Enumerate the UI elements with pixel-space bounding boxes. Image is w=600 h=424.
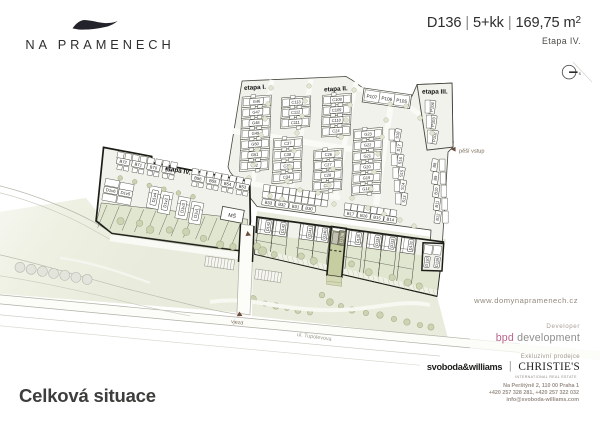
svg-text:G46: G46 — [253, 98, 261, 104]
svg-text:C111: C111 — [291, 120, 301, 126]
svg-text:G23: G23 — [364, 131, 372, 137]
svg-text:G20: G20 — [363, 164, 371, 170]
svg-text:C113: C113 — [291, 99, 301, 105]
svg-text:G50: G50 — [251, 141, 259, 147]
svg-text:C38: C38 — [284, 152, 292, 158]
svg-text:s: s — [579, 71, 582, 76]
svg-text:C37: C37 — [284, 140, 292, 146]
svg-text:etapa I.: etapa I. — [244, 84, 267, 92]
svg-text:C28: C28 — [324, 172, 332, 178]
svg-text:C24: C24 — [332, 128, 340, 134]
svg-text:G19: G19 — [363, 175, 371, 181]
svg-text:C109: C109 — [332, 107, 342, 113]
svg-text:G21: G21 — [363, 153, 371, 159]
svg-text:G47: G47 — [252, 109, 260, 115]
svg-text:G51: G51 — [251, 152, 259, 158]
svg-text:etapa III.: etapa III. — [422, 89, 448, 96]
svg-text:etapa II.: etapa II. — [324, 85, 348, 93]
svg-text:G48: G48 — [252, 120, 260, 126]
svg-text:C27: C27 — [324, 162, 332, 168]
svg-text:C112: C112 — [291, 109, 301, 115]
svg-text:C110: C110 — [332, 117, 342, 123]
svg-text:C26: C26 — [325, 152, 333, 158]
svg-text:G22: G22 — [364, 142, 372, 148]
svg-text:pěší vstup: pěší vstup — [459, 149, 485, 155]
svg-text:C108: C108 — [332, 97, 342, 103]
